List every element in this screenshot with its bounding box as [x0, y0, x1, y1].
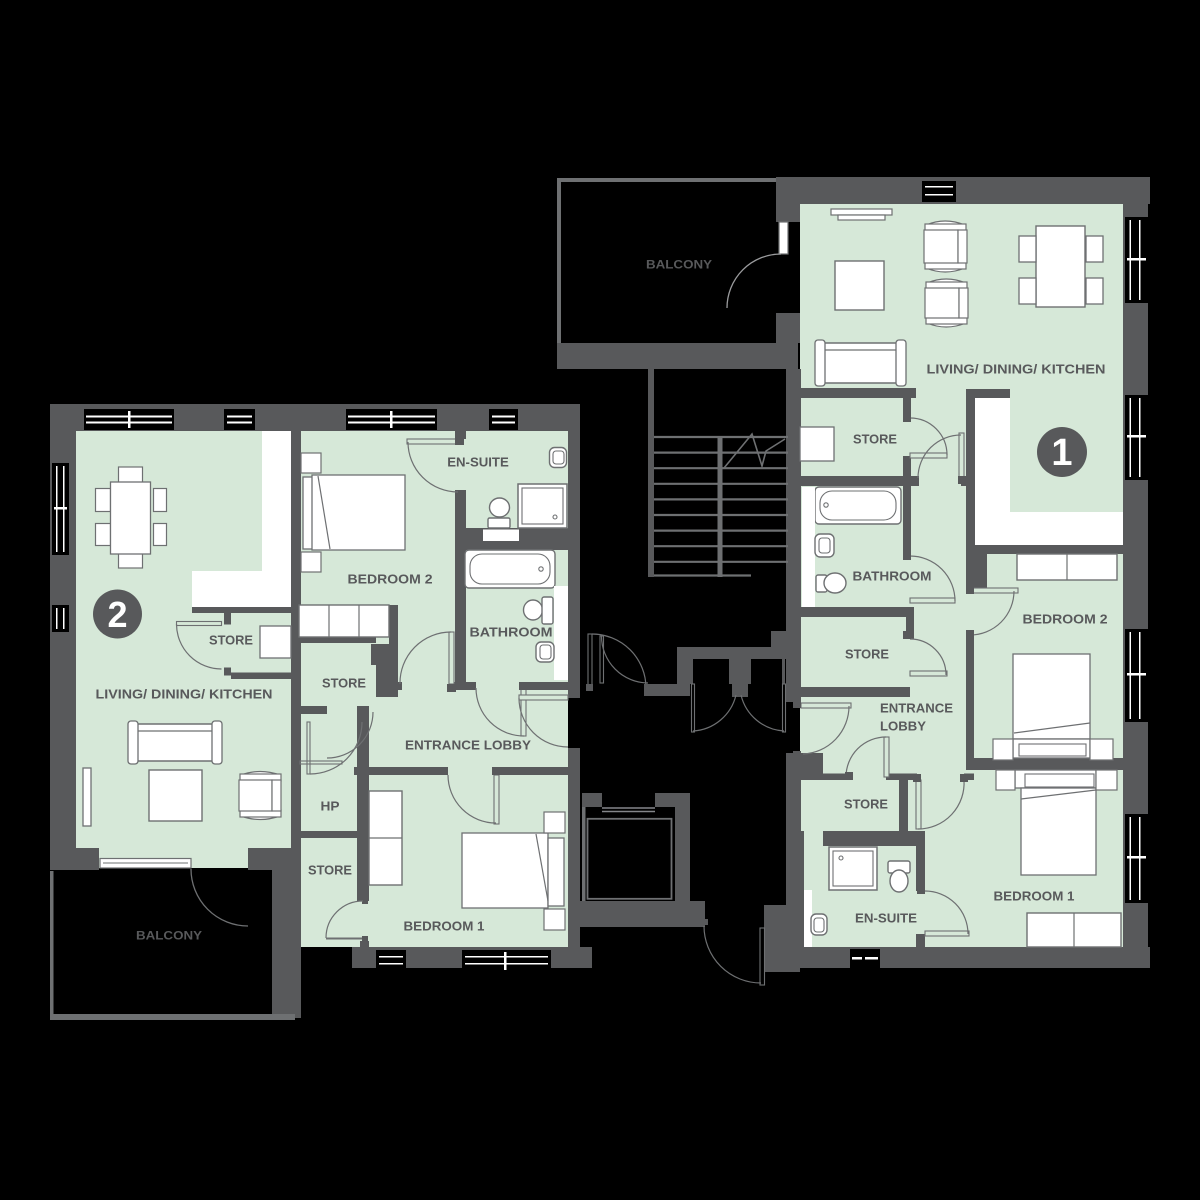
- svg-text:STORE: STORE: [308, 863, 352, 878]
- svg-text:BEDROOM 1: BEDROOM 1: [994, 889, 1075, 904]
- svg-text:STORE: STORE: [845, 647, 889, 662]
- svg-text:ENTRANCE: ENTRANCE: [880, 701, 953, 716]
- svg-text:EN-SUITE: EN-SUITE: [855, 911, 917, 926]
- svg-text:BATHROOM: BATHROOM: [853, 569, 932, 584]
- svg-text:ENTRANCE LOBBY: ENTRANCE LOBBY: [405, 738, 531, 753]
- svg-text:BEDROOM 1: BEDROOM 1: [404, 919, 485, 934]
- svg-text:BEDROOM 2: BEDROOM 2: [1023, 612, 1108, 627]
- svg-text:STORE: STORE: [844, 797, 888, 812]
- svg-text:STORE: STORE: [853, 432, 897, 447]
- svg-text:BALCONY: BALCONY: [136, 929, 202, 943]
- svg-text:BALCONY: BALCONY: [646, 258, 712, 272]
- svg-text:LIVING/ DINING/ KITCHEN: LIVING/ DINING/ KITCHEN: [96, 687, 273, 702]
- svg-text:STORE: STORE: [209, 633, 253, 648]
- svg-text:LIVING/ DINING/ KITCHEN: LIVING/ DINING/ KITCHEN: [927, 362, 1106, 377]
- svg-text:BEDROOM 2: BEDROOM 2: [348, 572, 433, 587]
- svg-text:STORE: STORE: [322, 676, 366, 691]
- svg-text:BATHROOM: BATHROOM: [470, 625, 553, 640]
- svg-text:2: 2: [107, 594, 127, 635]
- svg-text:HP: HP: [321, 799, 340, 814]
- svg-text:EN-SUITE: EN-SUITE: [447, 455, 509, 470]
- svg-text:LOBBY: LOBBY: [880, 719, 926, 734]
- svg-text:1: 1: [1051, 432, 1072, 474]
